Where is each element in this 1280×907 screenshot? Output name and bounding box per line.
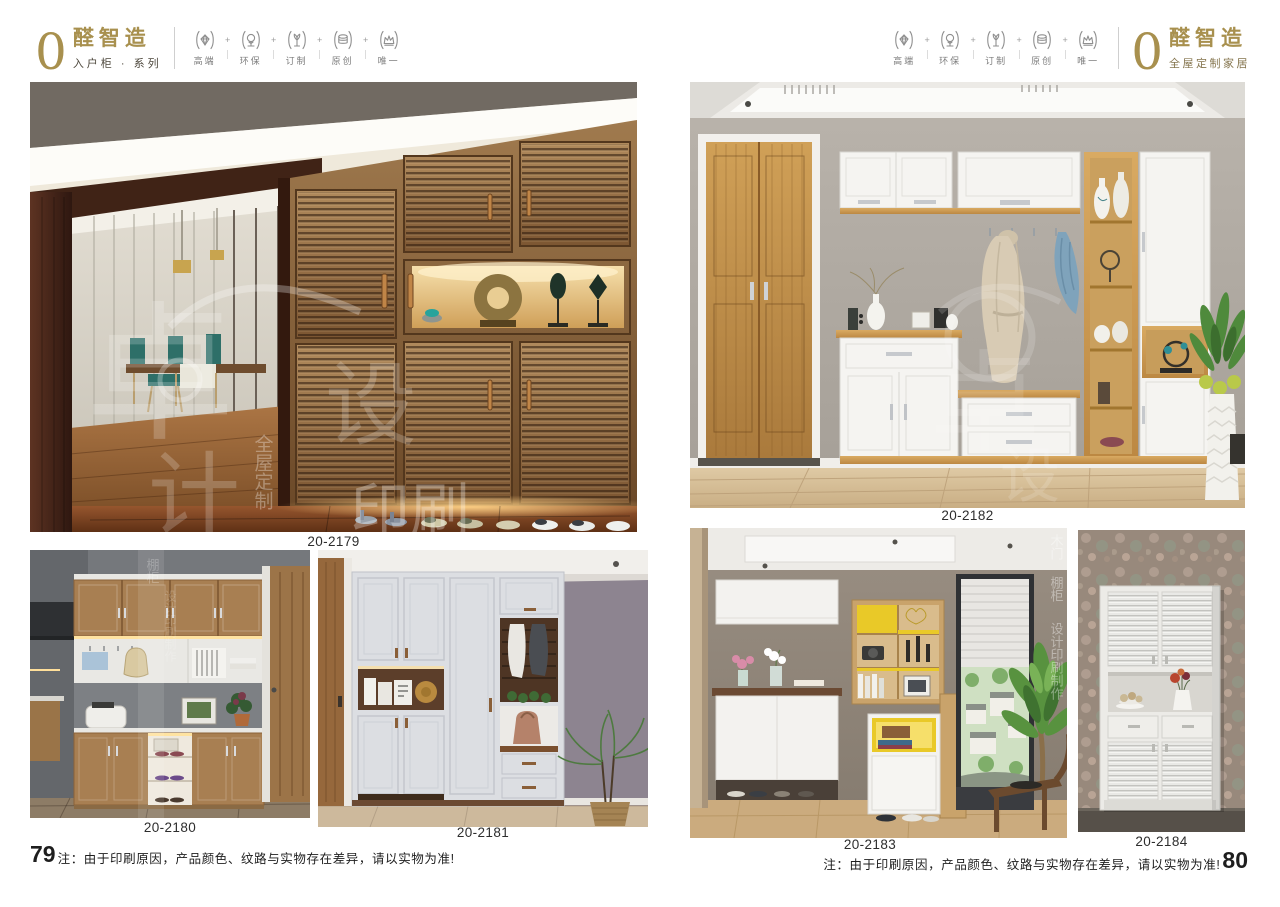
scene-yellow-accent-cabinet: 木门 棚柜 设计印刷制作 [690, 528, 1067, 838]
product-photo-20-2184 [1078, 530, 1245, 832]
badge-label: 订制 [985, 54, 1007, 67]
tree-icon [939, 29, 961, 51]
badge-separator: + [968, 29, 978, 59]
crown-icon [378, 29, 400, 51]
brand-name: 醛智造 [1169, 22, 1250, 52]
coins-icon [1031, 29, 1053, 51]
badge-original: 原创 [1024, 29, 1060, 67]
watermark-text: 印刷 [350, 478, 470, 532]
brand-text: 醛智造 入户柜 · 系列 [73, 22, 162, 73]
product-code: 20-2184 [1078, 834, 1245, 849]
badge-unique: 唯一 [1070, 29, 1106, 67]
badge-label: 高端 [893, 54, 915, 67]
brand-logo-left: 0 醛智造 入户柜 · 系列 [35, 22, 162, 73]
badge-original: 原创 [325, 29, 361, 67]
page-number-left: 79 [30, 843, 56, 866]
badge-eco: 环保 [233, 29, 269, 67]
badge-separator: + [269, 29, 279, 59]
badge-label: 环保 [939, 54, 961, 67]
tree-icon [240, 29, 262, 51]
badge-custom: 订制 [279, 29, 315, 67]
plus-sign: + [363, 36, 368, 45]
watermark-text: 卓 [85, 291, 235, 459]
brand-name: 醛智造 [73, 22, 162, 52]
plus-sign: + [1063, 36, 1068, 45]
sprout-icon [985, 29, 1007, 51]
print-disclaimer: 注：由于印刷原因，产品颜色、纹路与实物存在差异，请以实物为准! [821, 854, 1222, 873]
header-left: 0 醛智造 入户柜 · 系列 高端 + 环保 + 订制 + [35, 22, 407, 73]
product-photo-20-2181 [318, 550, 648, 827]
coins-icon [332, 29, 354, 51]
watermark-text: 设 [325, 355, 417, 457]
sprout-icon [286, 29, 308, 51]
plus-sign: + [971, 36, 976, 45]
watermark-text: 设计印刷制作 [1049, 622, 1064, 700]
brand-series: 入户柜 · 系列 [73, 55, 162, 71]
crown-icon [1077, 29, 1099, 51]
catalog-spread: 0 醛智造 入户柜 · 系列 高端 + 环保 + 订制 + [0, 0, 1280, 907]
badge-label: 环保 [240, 54, 262, 67]
brand-text: 醛智造 全屋定制家居 [1169, 22, 1250, 73]
plus-sign: + [317, 36, 322, 45]
brand-logo-right: 0 醛智造 全屋定制家居 [1131, 22, 1250, 73]
product-code: 20-2182 [690, 508, 1245, 523]
scene-wood-entry-cabinet: 棚柜 设计印刷制作 [30, 550, 310, 818]
watermark-text: 棚柜 [145, 558, 160, 584]
badge-separator: + [922, 29, 932, 59]
header-divider [1118, 27, 1119, 69]
diamond-icon [893, 29, 915, 51]
brand-zero: 0 [1131, 31, 1163, 74]
product-photo-20-2183: 木门 棚柜 设计印刷制作 [690, 528, 1067, 838]
print-disclaimer: 注：由于印刷原因，产品颜色、纹路与实物存在差异，请以实物为准! [56, 848, 457, 867]
footer-left: 79 注：由于印刷原因，产品颜色、纹路与实物存在差异，请以实物为准! [30, 843, 457, 867]
plus-sign: + [1017, 36, 1022, 45]
watermark-text: 木门 [1049, 534, 1064, 560]
badge-premium: 高端 [187, 29, 223, 67]
watermark-text: 棚柜 [1049, 576, 1064, 602]
plus-sign: + [271, 36, 276, 45]
badge-unique: 唯一 [371, 29, 407, 67]
scene-white-entry-cabinet: 卓 设 [690, 82, 1245, 508]
badge-label: 原创 [332, 54, 354, 67]
watermark-text: 全屋定制 [252, 434, 274, 510]
watermark-text: 设计印刷制作 [163, 590, 177, 662]
product-photo-20-2179: 卓 设 计 印刷 全屋定制 [30, 82, 637, 532]
plus-sign: + [225, 36, 230, 45]
header-right: 高端 + 环保 + 订制 + 原创 + 唯一 0 [886, 22, 1250, 73]
product-code: 20-2180 [30, 820, 310, 835]
badge-separator: + [1014, 29, 1024, 59]
product-code: 20-2181 [318, 825, 648, 840]
diamond-icon [194, 29, 216, 51]
badge-row-left: 高端 + 环保 + 订制 + 原创 + 唯一 [187, 29, 407, 67]
badge-premium: 高端 [886, 29, 922, 67]
header-divider [174, 27, 175, 69]
product-photo-20-2180: 棚柜 设计印刷制作 [30, 550, 310, 818]
badge-label: 唯一 [378, 54, 400, 67]
badge-row-right: 高端 + 环保 + 订制 + 原创 + 唯一 [886, 29, 1106, 67]
scene-white-louver-shoe-cabinet [1078, 530, 1245, 832]
badge-custom: 订制 [978, 29, 1014, 67]
badge-separator: + [1060, 29, 1070, 59]
scene-gray-shaker-cabinet [318, 550, 648, 827]
badge-label: 唯一 [1077, 54, 1099, 67]
brand-zero: 0 [35, 31, 67, 74]
badge-eco: 环保 [932, 29, 968, 67]
watermark-text: 计 [148, 446, 240, 532]
badge-label: 原创 [1031, 54, 1053, 67]
badge-separator: + [361, 29, 371, 59]
scene-louver-wardrobe: 卓 设 计 印刷 全屋定制 [30, 82, 637, 532]
plus-sign: + [925, 36, 930, 45]
badge-label: 订制 [286, 54, 308, 67]
badge-separator: + [315, 29, 325, 59]
brand-tagline: 全屋定制家居 [1169, 55, 1250, 71]
product-photo-20-2182: 卓 设 [690, 82, 1245, 508]
watermark-text: 设 [1000, 443, 1060, 508]
footer-right: 注：由于印刷原因，产品颜色、纹路与实物存在差异，请以实物为准! 80 [821, 849, 1248, 873]
page-number-right: 80 [1222, 849, 1248, 872]
product-code: 20-2179 [30, 534, 637, 549]
badge-label: 高端 [194, 54, 216, 67]
badge-separator: + [223, 29, 233, 59]
